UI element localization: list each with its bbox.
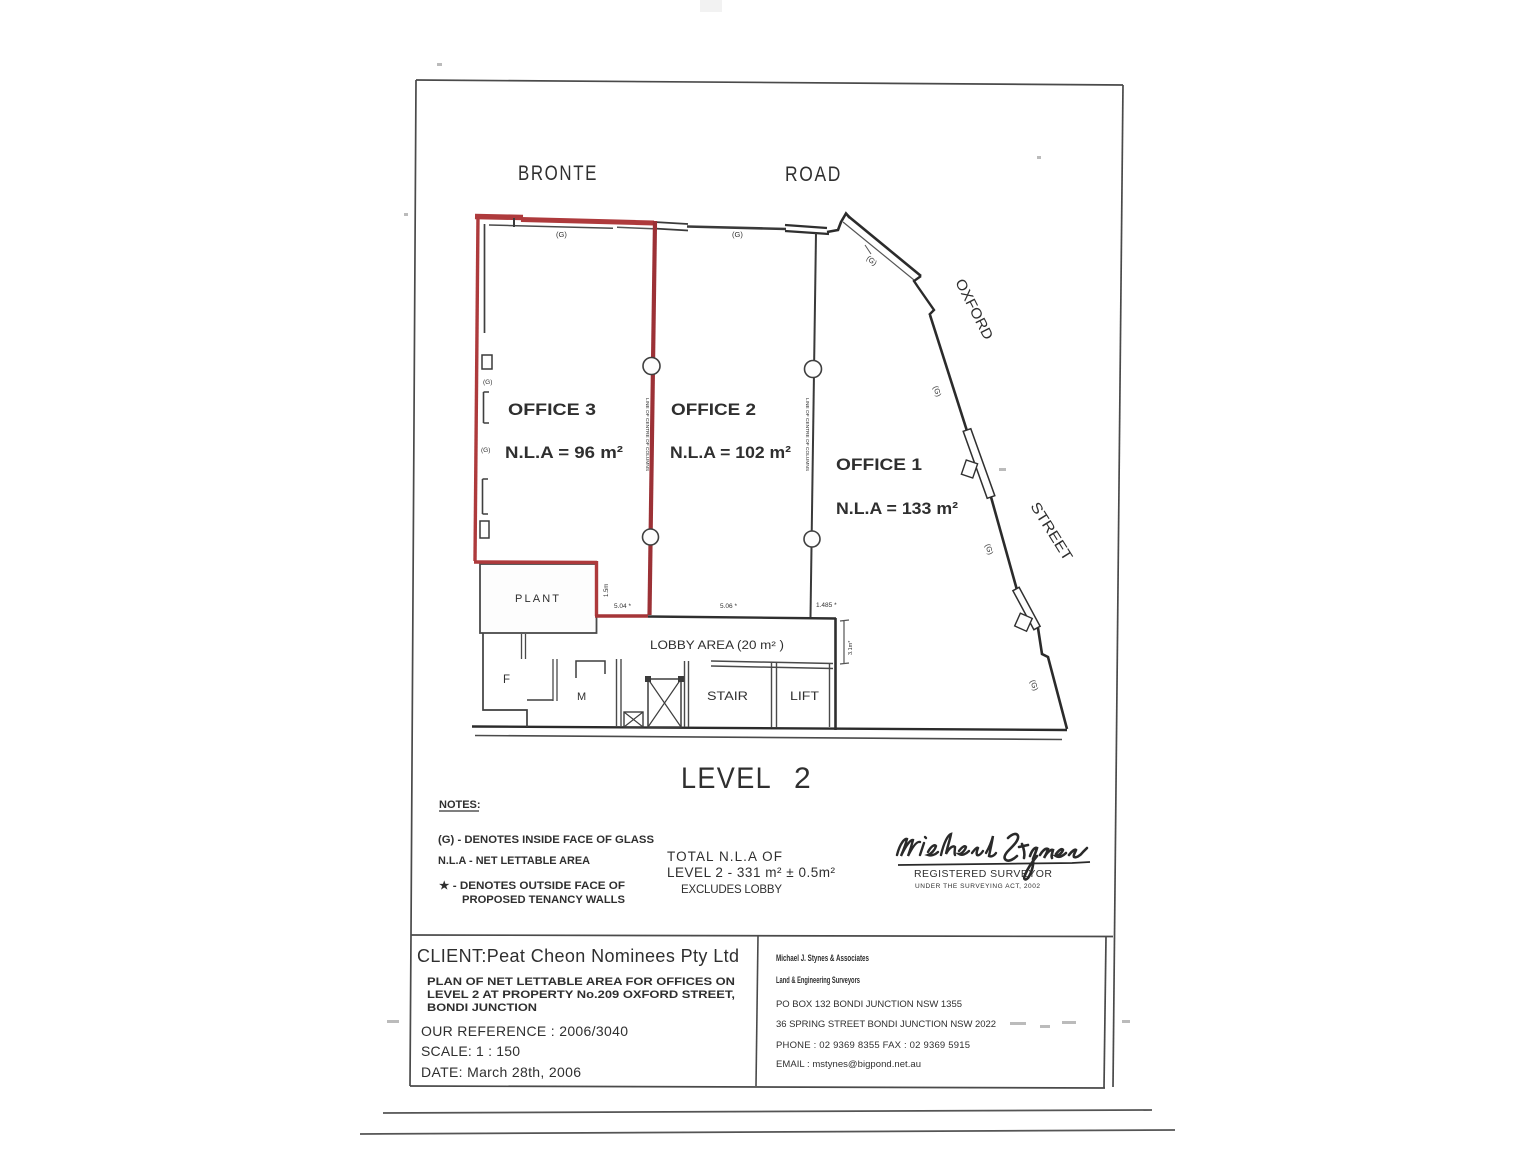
svg-text:TOTAL N.L.A OF: TOTAL N.L.A OF bbox=[667, 849, 782, 864]
svg-text:(G): (G) bbox=[556, 230, 567, 239]
svg-text:OUR REFERENCE : 2006/3040: OUR REFERENCE : 2006/3040 bbox=[421, 1023, 628, 1039]
svg-text:(G): (G) bbox=[931, 385, 943, 399]
svg-text:LEVEL 2 - 331 m² ± 0.5m²: LEVEL 2 - 331 m² ± 0.5m² bbox=[667, 865, 836, 880]
svg-text:BONDI JUNCTION: BONDI JUNCTION bbox=[427, 1002, 537, 1014]
svg-text:(G): (G) bbox=[865, 254, 879, 268]
svg-text:ROAD: ROAD bbox=[785, 163, 842, 186]
svg-text:N.L.A = 96 m²: N.L.A = 96 m² bbox=[505, 443, 623, 462]
svg-text:OFFICE 2: OFFICE 2 bbox=[671, 400, 756, 419]
svg-text:PHONE : 02 9369 8355 FAX :: PHONE : 02 9369 8355 FAX : 02 9369 5915 bbox=[776, 1040, 970, 1051]
svg-text:1.5m: 1.5m bbox=[604, 584, 610, 597]
svg-text:N.L.A = 133 m²: N.L.A = 133 m² bbox=[836, 499, 958, 518]
svg-text:5.04 *: 5.04 * bbox=[614, 603, 631, 610]
svg-text:1.485 *: 1.485 * bbox=[816, 602, 837, 609]
svg-text:N.L.A - NET LETTABLE AREA: N.L.A - NET LETTABLE AREA bbox=[438, 855, 590, 867]
svg-text:(G): (G) bbox=[732, 230, 743, 239]
svg-text:OFFICE 3: OFFICE 3 bbox=[508, 400, 596, 419]
svg-text:DATE: March 28th, 2006: DATE: March 28th, 2006 bbox=[421, 1064, 581, 1080]
svg-text:STREET: STREET bbox=[1027, 500, 1076, 565]
svg-text:EXCLUDES LOBBY: EXCLUDES LOBBY bbox=[681, 884, 782, 896]
svg-text:UNDER THE SURVEYING ACT, 2002: UNDER THE SURVEYING ACT, 2002 bbox=[915, 883, 1040, 890]
svg-text:36 SPRING STREET BONDI JUNCTIO: 36 SPRING STREET BONDI JUNCTION NSW 2022 bbox=[776, 1019, 996, 1030]
svg-text:5.06 *: 5.06 * bbox=[720, 603, 737, 610]
svg-text:(G): (G) bbox=[483, 379, 492, 386]
svg-text:(G): (G) bbox=[983, 543, 995, 557]
svg-text:REGISTERED SURVEYOR: REGISTERED SURVEYOR bbox=[914, 868, 1052, 880]
svg-text:CLIENT:Peat Cheon Nominees Pty: CLIENT:Peat Cheon Nominees Pty Ltd bbox=[417, 946, 739, 966]
svg-text:LEVEL: LEVEL bbox=[681, 762, 772, 795]
svg-text:SCALE: 1 : 150: SCALE: 1 : 150 bbox=[421, 1043, 520, 1059]
svg-text:PO BOX 132 BONDI JUNCTION NSW: PO BOX 132 BONDI JUNCTION NSW 1355 bbox=[776, 999, 962, 1010]
svg-text:2: 2 bbox=[794, 762, 811, 795]
svg-text:LOBBY AREA (20 m² ): LOBBY AREA (20 m² ) bbox=[650, 640, 784, 652]
svg-text:LIFT: LIFT bbox=[790, 691, 819, 703]
svg-text:F: F bbox=[503, 674, 510, 686]
svg-text:(G) - DENOTES INSIDE FACE OF G: (G) - DENOTES INSIDE FACE OF GLASS bbox=[438, 834, 654, 846]
svg-text:PLAN OF NET LETTABLE AREA FOR: PLAN OF NET LETTABLE AREA FOR OFFICES ON bbox=[427, 976, 735, 988]
svg-text:M: M bbox=[577, 691, 586, 703]
svg-text:BRONTE: BRONTE bbox=[518, 162, 598, 185]
svg-text:LINE OF CENTRE OF COLUMNS: LINE OF CENTRE OF COLUMNS bbox=[804, 398, 810, 471]
svg-text:Michael J. Stynes & Associates: Michael J. Stynes & Associates bbox=[776, 953, 869, 963]
svg-text:3.1m*: 3.1m* bbox=[848, 640, 854, 655]
svg-text:(G): (G) bbox=[1028, 679, 1040, 693]
svg-text:STAIR: STAIR bbox=[707, 691, 748, 703]
svg-text:LINE OF CENTRE OF COLUMNS: LINE OF CENTRE OF COLUMNS bbox=[644, 398, 650, 471]
svg-text:NOTES:: NOTES: bbox=[439, 799, 481, 811]
svg-text:★ - DENOTES OUTSIDE FACE OF: ★ - DENOTES OUTSIDE FACE OF bbox=[439, 880, 625, 892]
svg-text:OXFORD: OXFORD bbox=[951, 277, 995, 343]
svg-text:PROPOSED TENANCY WALLS: PROPOSED TENANCY WALLS bbox=[462, 894, 625, 906]
svg-text:(G): (G) bbox=[481, 447, 490, 454]
svg-text:EMAIL : mstynes@bigpond.net.a: EMAIL : mstynes@bigpond.net.au bbox=[776, 1059, 921, 1070]
svg-text:N.L.A = 102 m²: N.L.A = 102 m² bbox=[670, 443, 791, 462]
svg-text:Land & Engineering Surveyors: Land & Engineering Surveyors bbox=[776, 975, 860, 985]
svg-text:OFFICE 1: OFFICE 1 bbox=[836, 455, 922, 474]
svg-text:PLANT: PLANT bbox=[515, 593, 559, 605]
svg-text:LEVEL 2 AT PROPERTY No.209 OXF: LEVEL 2 AT PROPERTY No.209 OXFORD STREET… bbox=[427, 989, 735, 1001]
